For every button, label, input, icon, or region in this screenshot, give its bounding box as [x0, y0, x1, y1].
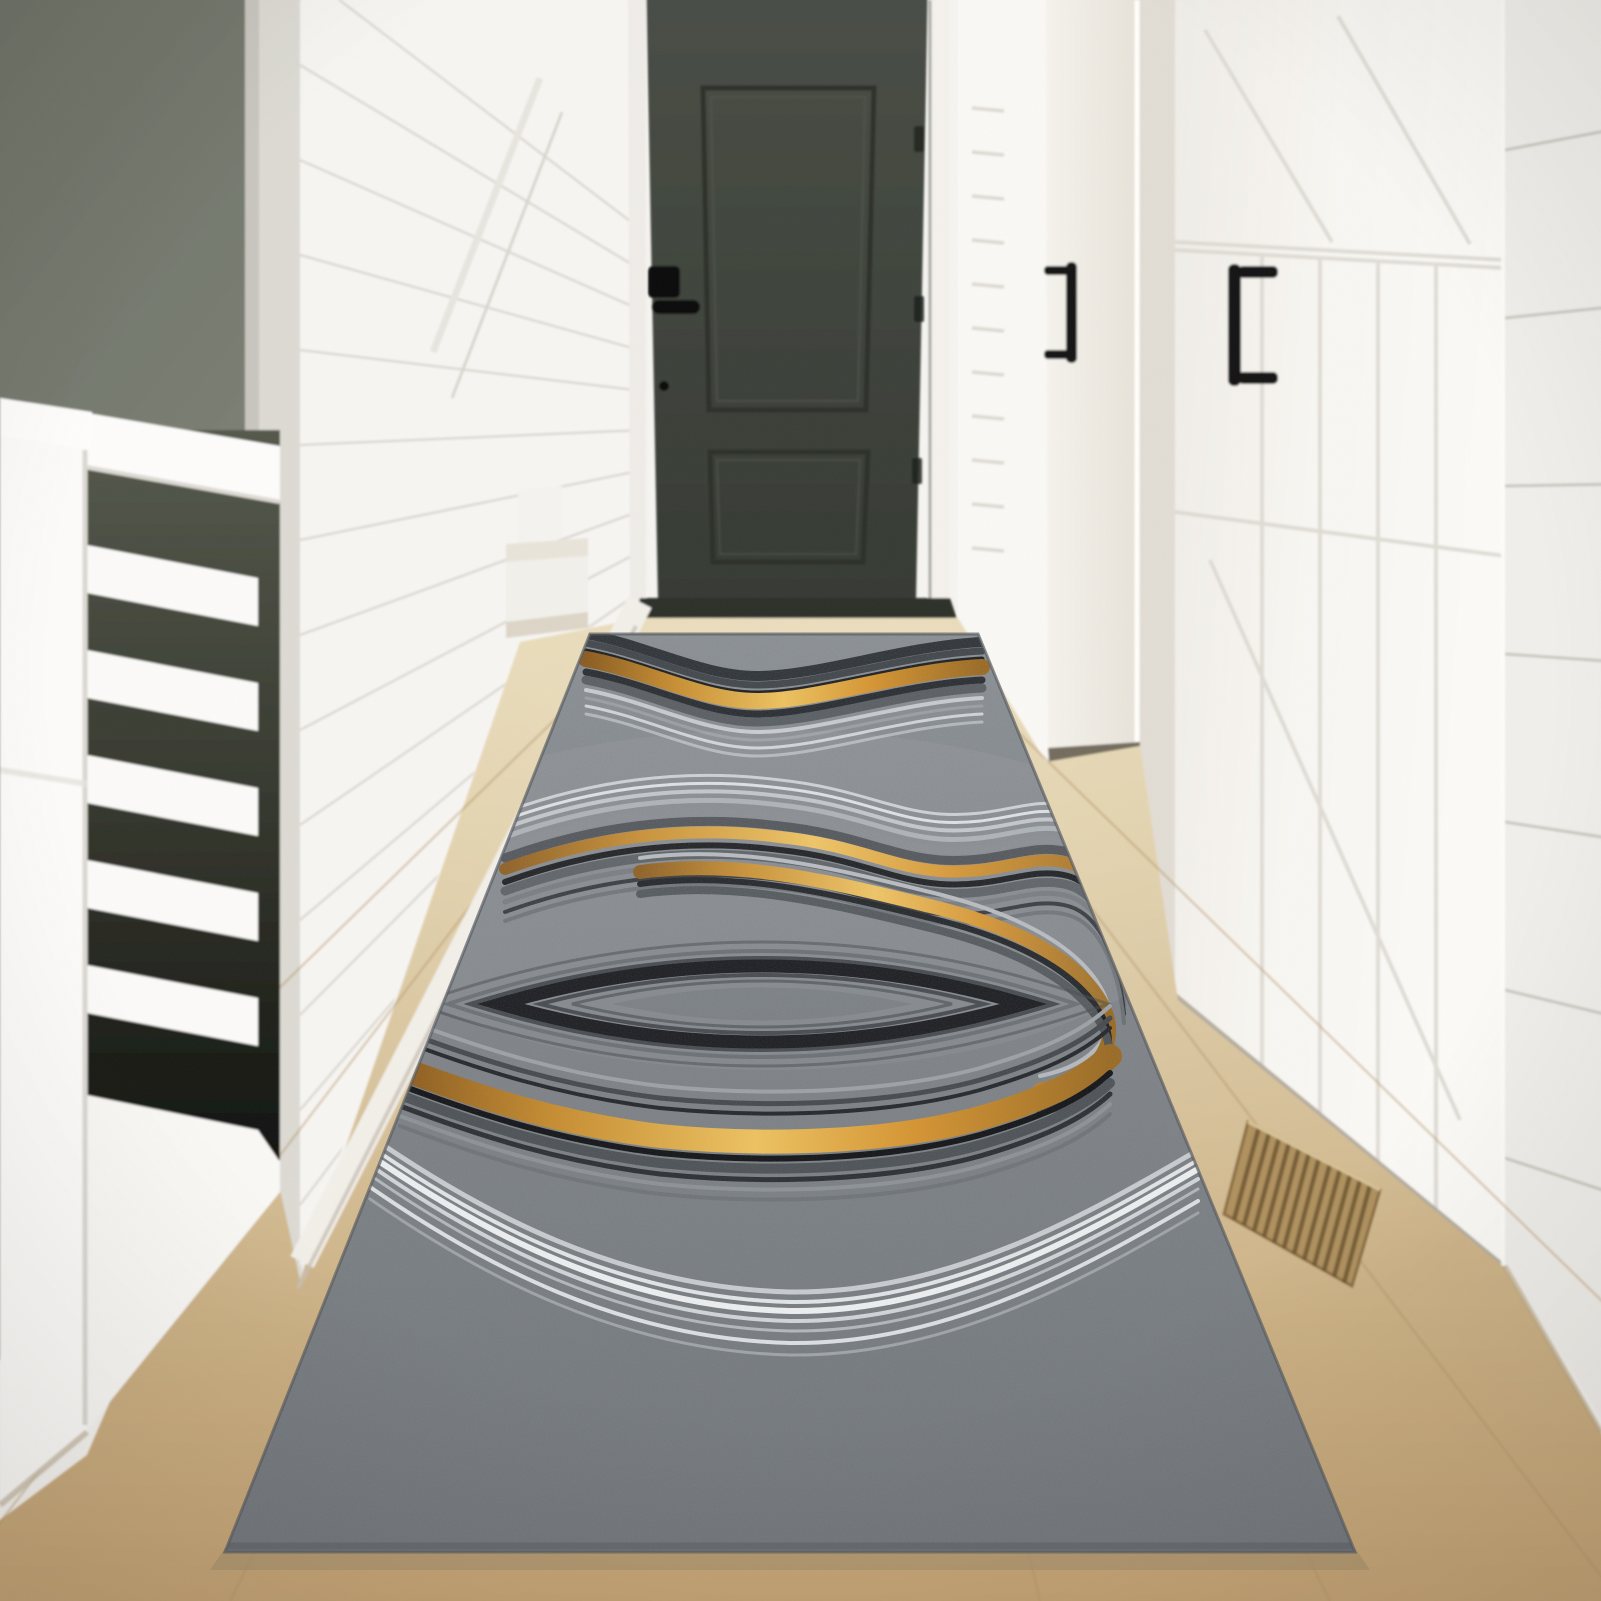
product-photo: Product photo: a grey abstract runner ru… — [0, 0, 1601, 1601]
vignette — [0, 0, 1601, 1601]
